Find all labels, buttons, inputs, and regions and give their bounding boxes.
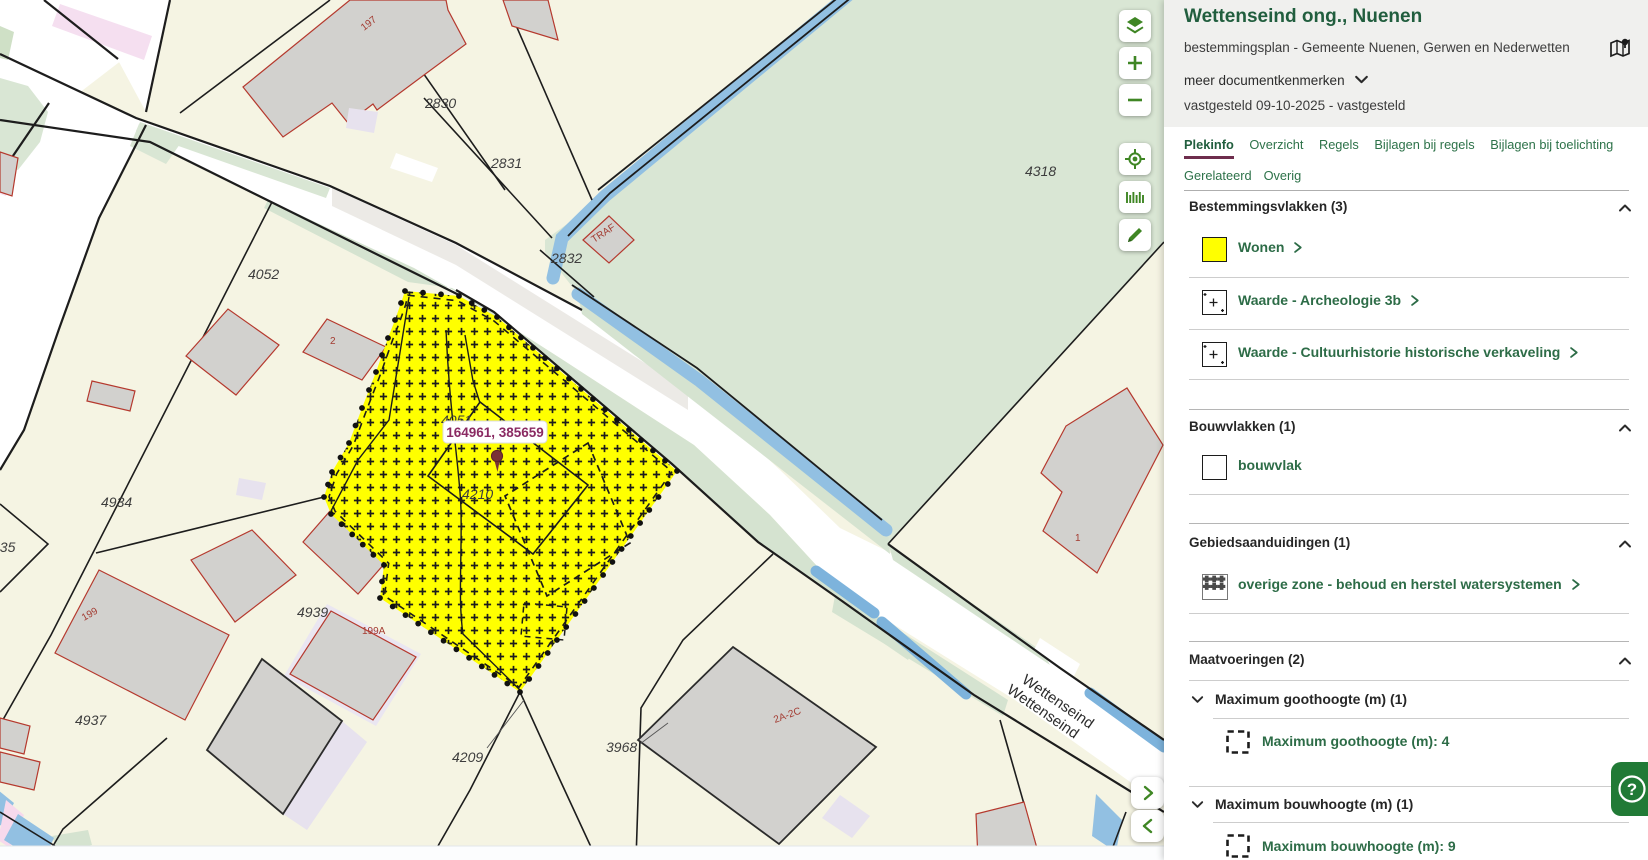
svg-text:199A: 199A [362,626,386,637]
svg-text:4052: 4052 [248,266,279,282]
svg-text:1: 1 [1075,533,1081,544]
svg-text:164961, 385659: 164961, 385659 [446,425,544,440]
svg-text:4937: 4937 [75,712,107,728]
svg-text:2830: 2830 [424,95,456,111]
svg-text:135: 135 [0,539,16,555]
svg-text:4210: 4210 [462,486,493,502]
svg-text:2832: 2832 [550,250,582,266]
svg-text:?: ? [1627,780,1637,799]
svg-text:4318: 4318 [1025,163,1056,179]
svg-text:3968: 3968 [606,739,637,755]
svg-text:4209: 4209 [452,749,483,765]
svg-text:2: 2 [330,336,336,347]
svg-text:4939: 4939 [297,604,328,620]
svg-text:4934: 4934 [101,494,132,510]
svg-text:2831: 2831 [490,155,522,171]
